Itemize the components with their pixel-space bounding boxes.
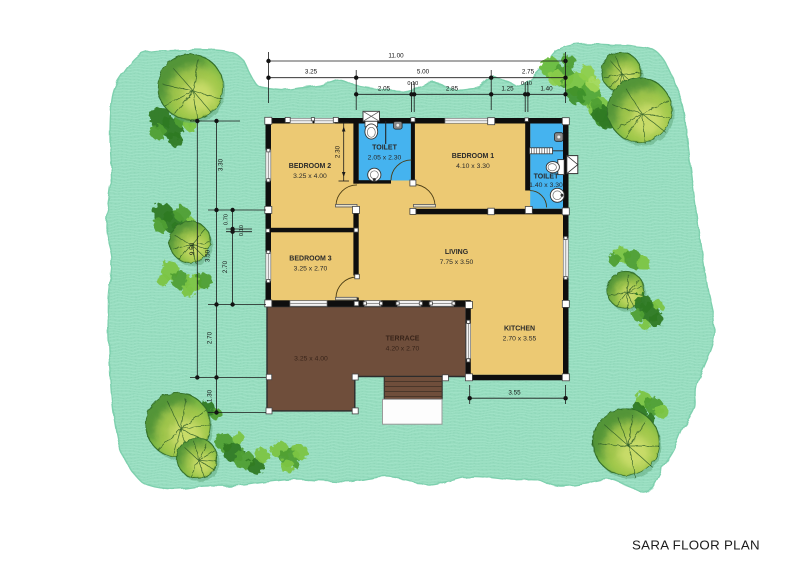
svg-text:11.00: 11.00 (388, 53, 404, 60)
svg-text:TERRACE: TERRACE (386, 336, 420, 343)
svg-text:2.05 x 2.30: 2.05 x 2.30 (368, 155, 402, 162)
svg-text:4.10 x 3.30: 4.10 x 3.30 (456, 163, 490, 170)
svg-text:1.40 x 3.30: 1.40 x 3.30 (529, 182, 563, 189)
svg-text:TOILET: TOILET (534, 174, 559, 181)
svg-text:2.85: 2.85 (446, 86, 459, 93)
svg-text:1.25: 1.25 (501, 86, 514, 93)
svg-text:3.25 x 4.00: 3.25 x 4.00 (294, 356, 328, 363)
svg-text:5.00: 5.00 (417, 69, 430, 76)
svg-text:TOILET: TOILET (372, 145, 397, 152)
svg-text:LIVING: LIVING (445, 249, 469, 256)
svg-text:3.25: 3.25 (305, 69, 318, 76)
svg-text:3.25 x 4.00: 3.25 x 4.00 (293, 173, 327, 180)
svg-text:0.10: 0.10 (239, 225, 245, 236)
svg-text:3.30: 3.30 (218, 158, 225, 171)
svg-text:0.70: 0.70 (224, 214, 230, 225)
svg-text:2.70: 2.70 (207, 331, 214, 344)
svg-text:9.50: 9.50 (189, 242, 196, 255)
svg-text:7.75 x 3.50: 7.75 x 3.50 (440, 259, 474, 266)
svg-text:BEDROOM 1: BEDROOM 1 (452, 153, 495, 160)
svg-text:4.20 x 2.70: 4.20 x 2.70 (386, 346, 420, 353)
svg-text:SARA FLOOR PLAN: SARA FLOOR PLAN (632, 537, 760, 552)
svg-text:2.75: 2.75 (522, 69, 535, 76)
svg-text:3.50: 3.50 (205, 249, 212, 262)
svg-text:3.55: 3.55 (508, 390, 521, 397)
svg-text:3.25 x 2.70: 3.25 x 2.70 (294, 266, 328, 273)
svg-text:2.05: 2.05 (378, 86, 391, 93)
svg-text:1.40: 1.40 (540, 86, 553, 93)
svg-text:BEDROOM 2: BEDROOM 2 (289, 163, 332, 170)
svg-text:2.30: 2.30 (335, 145, 342, 158)
svg-text:1.30: 1.30 (207, 389, 214, 402)
svg-text:BEDROOM 3: BEDROOM 3 (289, 256, 332, 263)
svg-text:KITCHEN: KITCHEN (504, 326, 535, 333)
svg-text:2.70: 2.70 (222, 260, 229, 273)
svg-text:0.10: 0.10 (521, 81, 532, 87)
svg-text:2.70 x 3.55: 2.70 x 3.55 (503, 336, 537, 343)
svg-text:0.10: 0.10 (407, 81, 418, 87)
